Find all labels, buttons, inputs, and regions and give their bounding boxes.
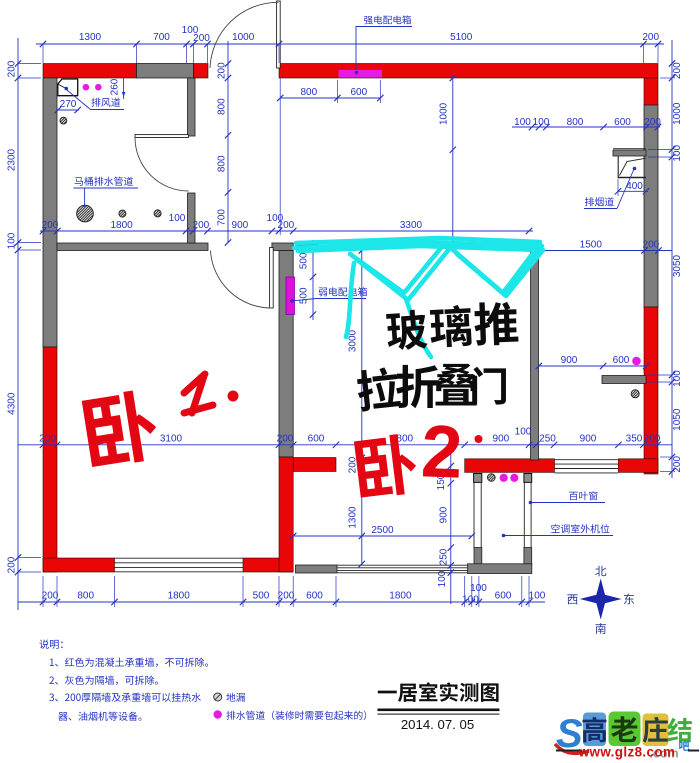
svg-text:1000: 1000 bbox=[232, 32, 255, 43]
svg-text:5100: 5100 bbox=[450, 32, 473, 43]
svg-text:600: 600 bbox=[308, 434, 325, 445]
svg-text:600: 600 bbox=[350, 87, 367, 98]
svg-text:350: 350 bbox=[626, 434, 643, 445]
svg-text:250: 250 bbox=[439, 548, 450, 565]
svg-text:500: 500 bbox=[253, 591, 270, 602]
svg-text:200: 200 bbox=[217, 62, 228, 79]
svg-text:800: 800 bbox=[217, 98, 228, 115]
svg-text:1500: 1500 bbox=[580, 240, 603, 251]
svg-text:1800: 1800 bbox=[168, 591, 191, 602]
svg-text:100: 100 bbox=[529, 591, 546, 602]
svg-text:200: 200 bbox=[39, 434, 56, 445]
svg-text:600: 600 bbox=[495, 591, 512, 602]
svg-text:600: 600 bbox=[613, 355, 630, 366]
svg-text:400: 400 bbox=[626, 181, 643, 192]
svg-text:600: 600 bbox=[614, 117, 631, 128]
svg-text:1800: 1800 bbox=[110, 220, 133, 231]
svg-text:100: 100 bbox=[672, 145, 683, 162]
svg-text:200: 200 bbox=[277, 434, 294, 445]
svg-text:4300: 4300 bbox=[7, 392, 18, 415]
svg-text:200: 200 bbox=[643, 240, 660, 251]
svg-text:270: 270 bbox=[60, 99, 77, 110]
svg-text:200: 200 bbox=[42, 220, 59, 231]
svg-text:100: 100 bbox=[515, 427, 532, 438]
svg-text:800: 800 bbox=[77, 591, 94, 602]
svg-text:100: 100 bbox=[462, 595, 479, 606]
svg-text:1000: 1000 bbox=[439, 102, 450, 125]
svg-text:700: 700 bbox=[153, 32, 170, 43]
svg-text:100: 100 bbox=[169, 213, 186, 224]
svg-text:800: 800 bbox=[300, 87, 317, 98]
svg-text:200: 200 bbox=[642, 32, 659, 43]
svg-text:260: 260 bbox=[109, 78, 120, 95]
svg-text:800: 800 bbox=[567, 117, 584, 128]
svg-text:1000: 1000 bbox=[672, 102, 683, 125]
svg-text:200: 200 bbox=[193, 33, 210, 44]
svg-text:3100: 3100 bbox=[160, 434, 183, 445]
svg-text:700: 700 bbox=[217, 209, 228, 226]
svg-text:200: 200 bbox=[7, 556, 18, 573]
svg-text:2500: 2500 bbox=[371, 525, 394, 536]
svg-text:200: 200 bbox=[644, 434, 661, 445]
svg-text:3050: 3050 bbox=[672, 254, 683, 277]
svg-text:900: 900 bbox=[493, 434, 510, 445]
svg-text:200: 200 bbox=[42, 591, 59, 602]
svg-text:200: 200 bbox=[672, 456, 683, 473]
svg-text:2: 2 bbox=[420, 409, 464, 493]
svg-text:100: 100 bbox=[533, 117, 550, 128]
svg-text:250: 250 bbox=[539, 434, 556, 445]
svg-text:100: 100 bbox=[514, 117, 531, 128]
svg-text:1300: 1300 bbox=[348, 506, 359, 529]
svg-text:200: 200 bbox=[193, 220, 210, 231]
svg-text:100: 100 bbox=[672, 370, 683, 387]
svg-text:1300: 1300 bbox=[79, 32, 102, 43]
svg-text:100: 100 bbox=[437, 570, 448, 587]
svg-text:800: 800 bbox=[217, 155, 228, 172]
svg-text:3300: 3300 bbox=[400, 220, 423, 231]
svg-text:www.glz8.com: www.glz8.com bbox=[578, 745, 676, 760]
svg-text:200: 200 bbox=[7, 60, 18, 77]
svg-text:900: 900 bbox=[561, 355, 578, 366]
svg-text:500: 500 bbox=[299, 252, 310, 269]
svg-text:1800: 1800 bbox=[389, 591, 412, 602]
svg-text:200: 200 bbox=[644, 117, 661, 128]
svg-text:600: 600 bbox=[306, 591, 323, 602]
svg-text:200: 200 bbox=[278, 591, 295, 602]
svg-text:1050: 1050 bbox=[672, 408, 683, 431]
svg-text:900: 900 bbox=[439, 506, 450, 523]
svg-text:100: 100 bbox=[7, 232, 18, 249]
svg-text:100: 100 bbox=[470, 583, 487, 594]
svg-text:2300: 2300 bbox=[7, 148, 18, 171]
svg-text:200: 200 bbox=[672, 62, 683, 79]
svg-text:900: 900 bbox=[580, 434, 597, 445]
svg-text:900: 900 bbox=[232, 220, 249, 231]
svg-text:2014. 07. 05: 2014. 07. 05 bbox=[401, 717, 474, 732]
svg-text:500: 500 bbox=[299, 287, 310, 304]
